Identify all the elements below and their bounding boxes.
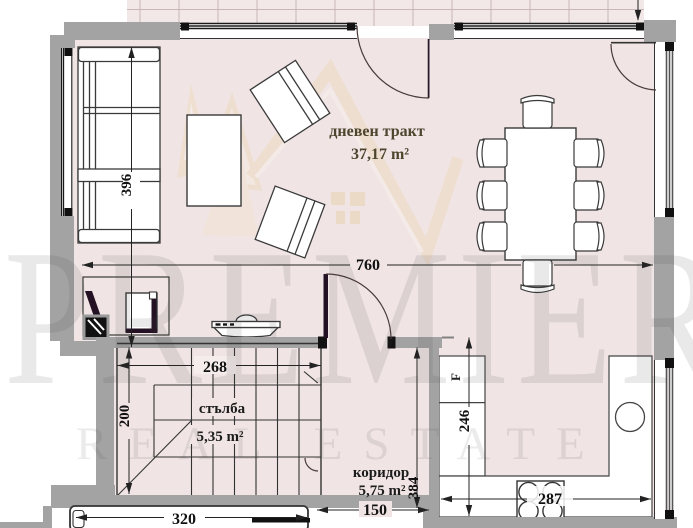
svg-text:дневен тракт: дневен тракт — [329, 123, 425, 140]
svg-text:396: 396 — [119, 173, 135, 196]
svg-text:PREMIER: PREMIER — [4, 211, 693, 426]
svg-text:5,75 m²: 5,75 m² — [359, 483, 406, 499]
svg-text:REAL ESTATE: REAL ESTATE — [76, 418, 606, 470]
svg-text:150: 150 — [363, 502, 387, 519]
svg-text:37,17 m²: 37,17 m² — [351, 146, 409, 163]
svg-text:287: 287 — [538, 491, 562, 508]
svg-text:320: 320 — [172, 511, 196, 528]
